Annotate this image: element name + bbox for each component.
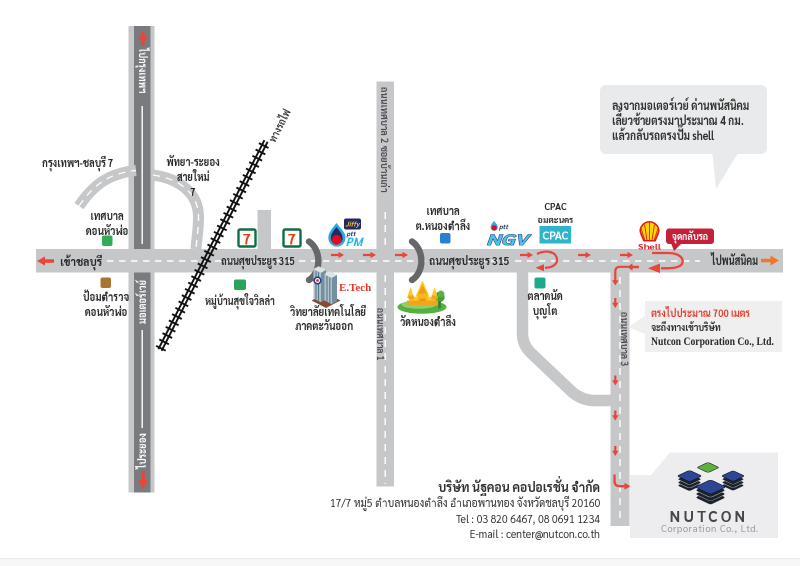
svg-text:7: 7 — [243, 230, 251, 249]
svg-text:NGV: NGV — [486, 230, 533, 249]
svg-text:7: 7 — [288, 230, 296, 249]
svg-text:Shell: Shell — [638, 241, 662, 252]
svg-text:Jiffy: Jiffy — [345, 220, 361, 229]
svg-text:CPAC: CPAC — [542, 228, 568, 243]
svg-text:PM: PM — [346, 233, 365, 249]
